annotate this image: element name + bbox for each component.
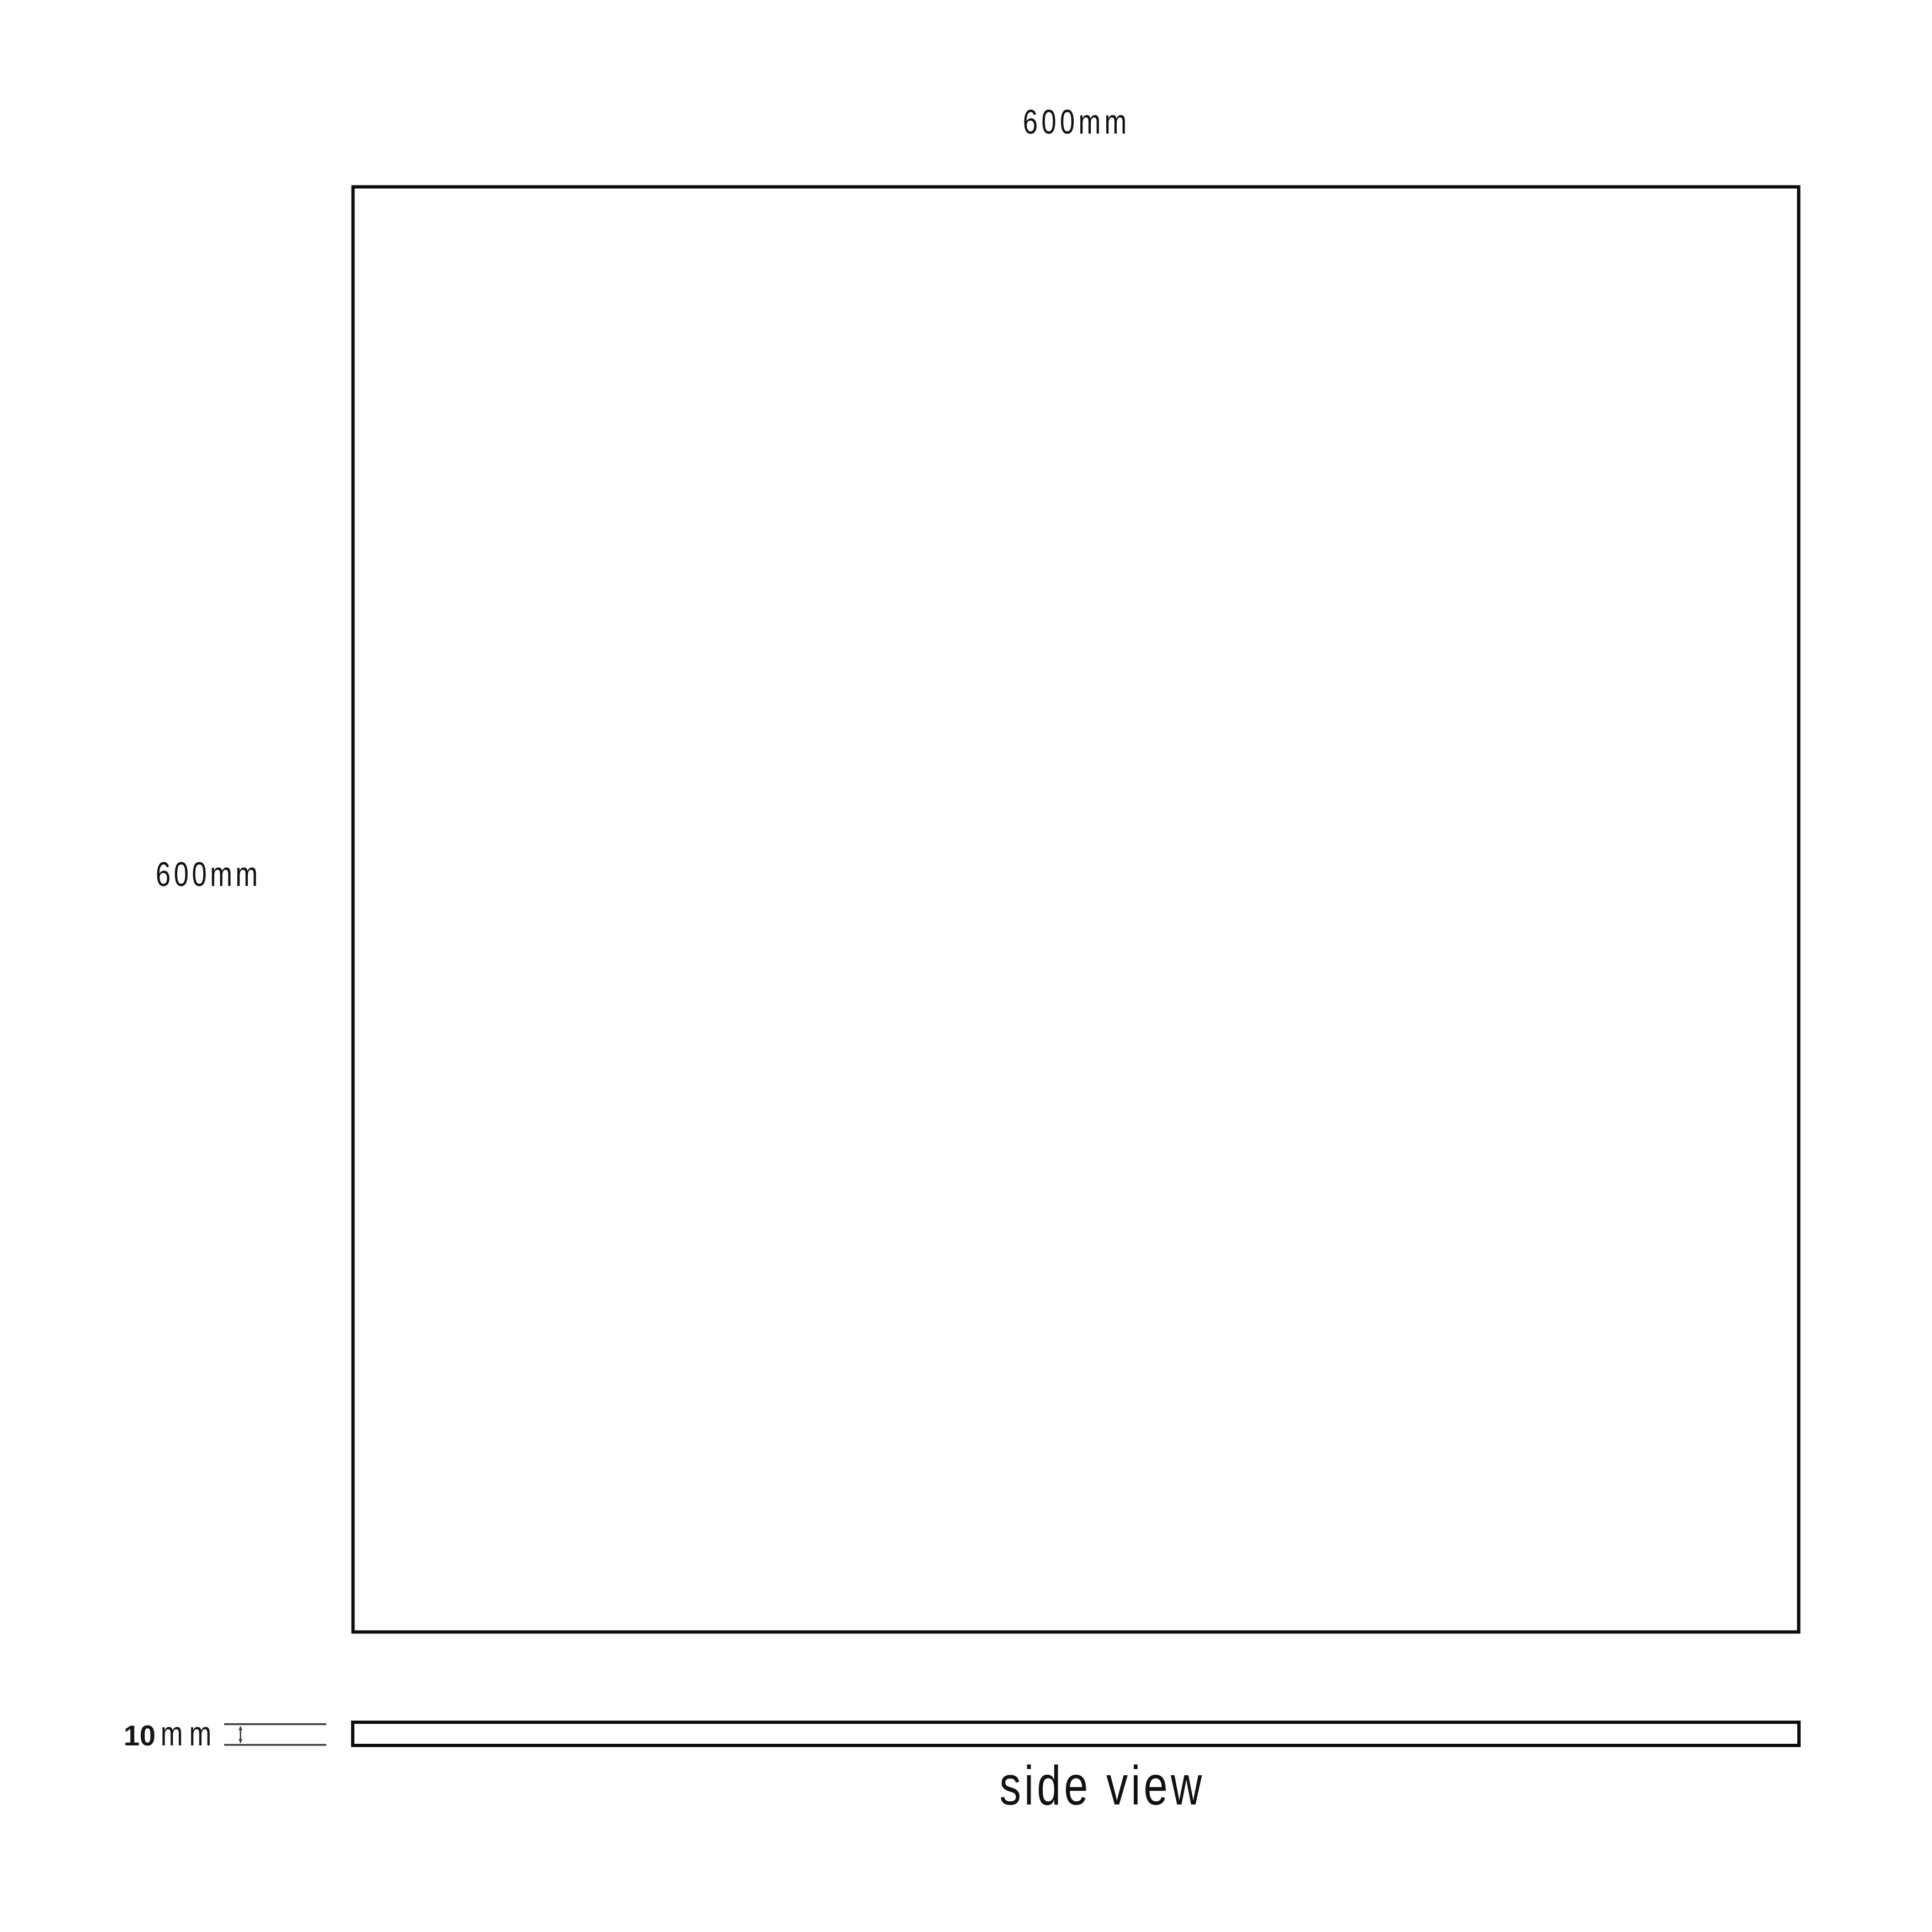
svg-text:side view: side view (1000, 1755, 1202, 1817)
svg-text:10: 10 (124, 1720, 156, 1752)
